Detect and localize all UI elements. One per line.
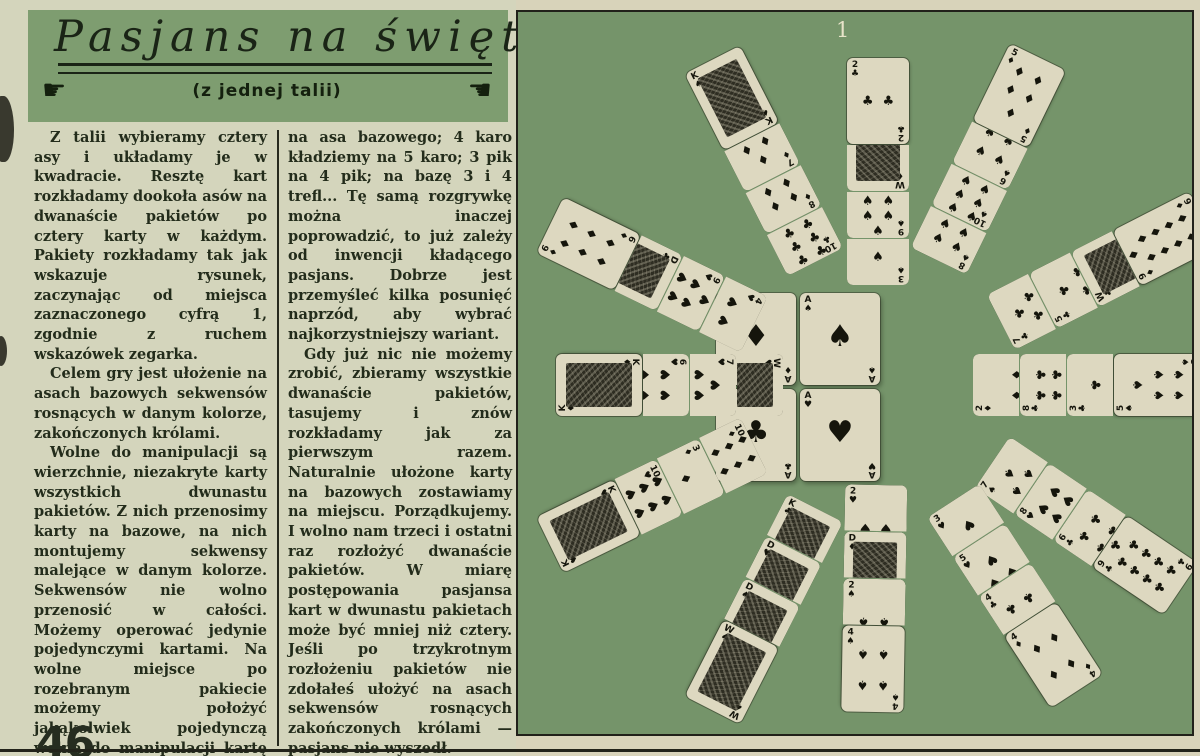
card-packet: K ♥K ♥10 ♥10 ♥♥♥♥♥♥♥♥♥♥♥3 ♦3 ♦♦♦♦10 ♦10 … bbox=[536, 418, 767, 573]
playing-card: D ♦D ♦ bbox=[844, 531, 907, 578]
bottom-rule bbox=[0, 749, 1200, 752]
card-pips: ♦♦ bbox=[985, 362, 1019, 408]
court-figure bbox=[856, 145, 900, 181]
paragraph: Celem gry jest ułożenie na asach bazowyc… bbox=[34, 364, 267, 443]
card-pips: ♥♥ bbox=[852, 497, 899, 532]
court-figure bbox=[697, 59, 766, 138]
card-packet: W ♠W ♠D ♠D ♠D ♥D ♥K ♣K ♣ bbox=[685, 494, 843, 724]
card-index: A ♥ bbox=[804, 392, 812, 409]
paragraph: Gdy już nic nie możemy zrobić, zbieramy … bbox=[288, 345, 512, 756]
playing-card: 5 ♠5 ♠♠♠♠♠♠ bbox=[1114, 354, 1194, 416]
card-pips: ♥♥♥♥♥♥♥ bbox=[690, 362, 724, 408]
manicule-right-icon: ☛ bbox=[42, 77, 66, 104]
paragraph: Z talii wybieramy cztery asy i układamy … bbox=[34, 128, 267, 364]
playing-card: 3 ♣3 ♣♣♣♣ bbox=[1067, 354, 1113, 416]
ace-pip: ♥ bbox=[800, 415, 880, 450]
playing-card: W ♦W ♦ bbox=[847, 145, 909, 191]
card-packet: 2 ♣2 ♣♣♣W ♦W ♦9 ♠9 ♠♠♠♠♠♠♠♠♠♠3 ♠3 ♠♠♠♠ bbox=[847, 58, 909, 285]
court-figure bbox=[737, 363, 773, 407]
card-index: A ♠ bbox=[868, 365, 876, 382]
article-section: Pasjans na święta ☛ (z jednej talii) ☚ Z… bbox=[0, 0, 516, 756]
ink-smudge bbox=[0, 96, 14, 162]
card-pips: ♥♥♥♥♥♥ bbox=[643, 362, 677, 408]
card-slice: 2 ♥2 ♥♥♥ bbox=[844, 484, 907, 531]
card-packet: K ♠K ♠7 ♦7 ♦♦♦♦♦♦♦♦8 ♦8 ♦♦♦♦♦♦♦♦♦10 ♣10 … bbox=[685, 46, 843, 276]
card-index: A ♥ bbox=[868, 461, 876, 478]
playing-card: 2 ♠2 ♠♠♠ bbox=[843, 578, 906, 625]
ace-card: A ♠A ♠♠ bbox=[800, 293, 880, 385]
paragraph: na asa bazowego; 4 karo kładziemy na 5 k… bbox=[288, 128, 512, 345]
ink-smudge bbox=[0, 336, 7, 366]
court-figure bbox=[852, 542, 897, 579]
text-column-1: Z talii wybieramy cztery asy i układamy … bbox=[34, 128, 267, 756]
ace-pip: ♠ bbox=[800, 319, 880, 354]
card-slice: 3 ♠3 ♠♠♠♠ bbox=[847, 239, 909, 285]
card-slice: 8 ♣8 ♣♣♣♣♣♣♣♣♣ bbox=[1020, 354, 1066, 416]
court-figure bbox=[549, 492, 628, 560]
card-pips: ♠♠♠♠♠♠♠♠♠ bbox=[855, 192, 901, 226]
card-pips: ♦♦♦♦♦♦♦♦♦ bbox=[1127, 204, 1194, 273]
card-packet: 5 ♦5 ♦♦♦♦♦♦6 ♠6 ♠♠♠♠♠♠♠10 ♠10 ♠♠♠♠♠♠♠♠♠♠… bbox=[911, 43, 1066, 274]
position-1-marker: 1 bbox=[836, 18, 849, 42]
ace-card: A ♥A ♥♥ bbox=[800, 389, 880, 481]
card-index: A ♠ bbox=[804, 296, 812, 313]
card-index: A ♦ bbox=[784, 365, 792, 382]
card-pips: ♦♦♦♦♦ bbox=[985, 58, 1054, 134]
card-index: A ♣ bbox=[784, 461, 792, 478]
title-banner: Pasjans na święta ☛ (z jednej talii) ☚ bbox=[28, 10, 508, 122]
card-packet: K ♦K ♦6 ♥6 ♥♥♥♥♥♥♥7 ♥7 ♥♥♥♥♥♥♥♥W ♥W ♥ bbox=[556, 354, 783, 416]
card-packet: 6 ♦6 ♦♦♦♦♦♦♦D ♣D ♣9 ♥9 ♥♥♥♥♥♥♥♥♥♥4 ♥4 ♥♥… bbox=[536, 197, 767, 352]
manicule-left-icon: ☚ bbox=[468, 77, 492, 104]
court-figure bbox=[566, 363, 632, 407]
playing-card: 2 ♥2 ♥♥♥ bbox=[844, 484, 907, 531]
playing-card: 9 ♠9 ♠♠♠♠♠♠♠♠♠♠ bbox=[847, 192, 909, 238]
card-pips: ♦♦♦♦ bbox=[1017, 617, 1089, 694]
paragraph: Wolne do manipulacji są wierzchnie, niez… bbox=[34, 443, 267, 756]
article-columns: Z talii wybieramy cztery asy i układamy … bbox=[34, 128, 512, 756]
playing-card: 8 ♣8 ♣♣♣♣♣♣♣♣♣ bbox=[1020, 354, 1066, 416]
card-packet: 5 ♠5 ♠♠♠♠♠♠3 ♣3 ♣♣♣♣8 ♣8 ♣♣♣♣♣♣♣♣♣2 ♦2 ♦… bbox=[973, 354, 1194, 416]
card-pips: ♠♠♠♠ bbox=[850, 638, 897, 701]
card-pips: ♣♣♣ bbox=[1079, 362, 1113, 408]
card-slice: 7 ♥7 ♥♥♥♥♥♥♥♥ bbox=[690, 354, 736, 416]
card-packet: 9 ♦9 ♦♦♦♦♦♦♦♦♦♦W ♣W ♣5 ♣5 ♣♣♣♣♣♣7 ♣7 ♣♣♣… bbox=[987, 192, 1194, 350]
playing-card: 4 ♠4 ♠♠♠♠♠ bbox=[841, 625, 904, 712]
card-pips: ♣♣ bbox=[855, 70, 901, 132]
card-pips: ♠♠♠ bbox=[855, 239, 901, 273]
magazine-page: Pasjans na święta ☛ (z jednej talii) ☚ Z… bbox=[0, 0, 1200, 756]
card-pips: ♠♠ bbox=[850, 591, 897, 626]
card-pips: ♠♠♠♠♠ bbox=[1126, 362, 1188, 408]
cards-photo: 1 A ♦A ♦♦A ♠A ♠♠A ♣A ♣♣A ♥A ♥♥ 2 ♣2 ♣♣♣W… bbox=[516, 10, 1194, 736]
court-figure bbox=[697, 633, 766, 712]
text-column-2: na asa bazowego; 4 karo kładziemy na 5 k… bbox=[288, 128, 512, 756]
card-slice: 2 ♦2 ♦♦♦ bbox=[973, 354, 1019, 416]
article-subtitle: (z jednej talii) bbox=[192, 81, 341, 101]
playing-card: 2 ♦2 ♦♦♦ bbox=[973, 354, 1019, 416]
card-pips: ♣♣♣♣♣♣♣♣ bbox=[1032, 362, 1066, 408]
card-slice: 3 ♣3 ♣♣♣♣ bbox=[1067, 354, 1113, 416]
card-pips: ♣♣♣♣♣♣♣♣♣ bbox=[1106, 529, 1183, 602]
playing-card: K ♦K ♦ bbox=[556, 354, 642, 416]
card-packet: 4 ♠4 ♠♠♠♠♠2 ♠2 ♠♠♠D ♦D ♦2 ♥2 ♥♥♥ bbox=[841, 484, 907, 712]
card-slice: 6 ♥6 ♥♥♥♥♥♥♥ bbox=[643, 354, 689, 416]
playing-card: 2 ♣2 ♣♣♣ bbox=[847, 58, 909, 144]
card-slice: 9 ♠9 ♠♠♠♠♠♠♠♠♠♠ bbox=[847, 192, 909, 238]
playing-card: 7 ♥7 ♥♥♥♥♥♥♥♥ bbox=[690, 354, 736, 416]
playing-card: W ♥W ♥ bbox=[737, 354, 783, 416]
card-slice: W ♦W ♦ bbox=[847, 145, 909, 191]
card-slice: D ♦D ♦ bbox=[844, 531, 907, 578]
double-rule bbox=[58, 63, 492, 74]
playing-card: 3 ♠3 ♠♠♠♠ bbox=[847, 239, 909, 285]
page-title: Pasjans na święta bbox=[54, 12, 508, 62]
playing-card: 6 ♥6 ♥♥♥♥♥♥♥ bbox=[643, 354, 689, 416]
card-slice: 2 ♠2 ♠♠♠ bbox=[843, 578, 906, 625]
card-slice: W ♥W ♥ bbox=[737, 354, 783, 416]
column-divider bbox=[277, 130, 279, 746]
card-pips: ♦♦♦♦♦♦ bbox=[551, 210, 627, 279]
